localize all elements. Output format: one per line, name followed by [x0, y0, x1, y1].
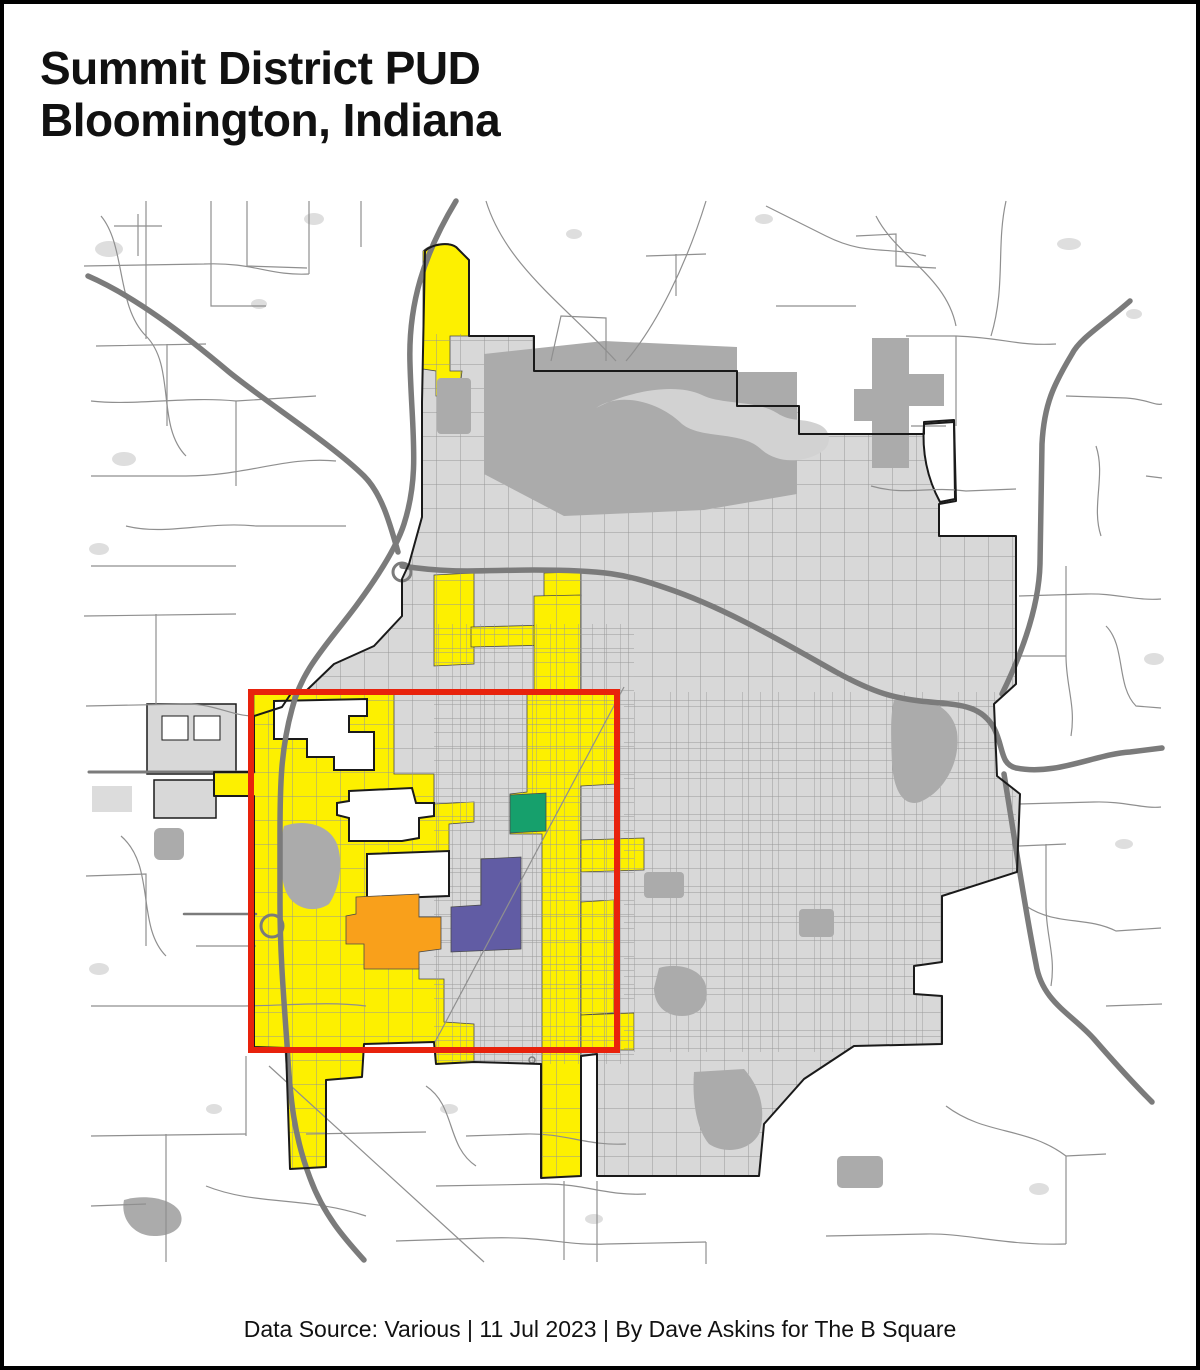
title-line-2: Bloomington, Indiana: [40, 94, 500, 146]
west-parcels: [92, 704, 236, 818]
pud-green-zone: [510, 793, 546, 833]
page-title: Summit District PUD Bloomington, Indiana: [40, 42, 500, 147]
map-frame: Summit District PUD Bloomington, Indiana…: [0, 0, 1200, 1370]
highway-southeast: [1004, 774, 1152, 1102]
caption: Data Source: Various | 11 Jul 2023 | By …: [4, 1316, 1196, 1343]
title-line-1: Summit District PUD: [40, 42, 500, 94]
highway-nw-feeder: [88, 276, 398, 552]
bloomington-map: [4, 4, 1200, 1370]
